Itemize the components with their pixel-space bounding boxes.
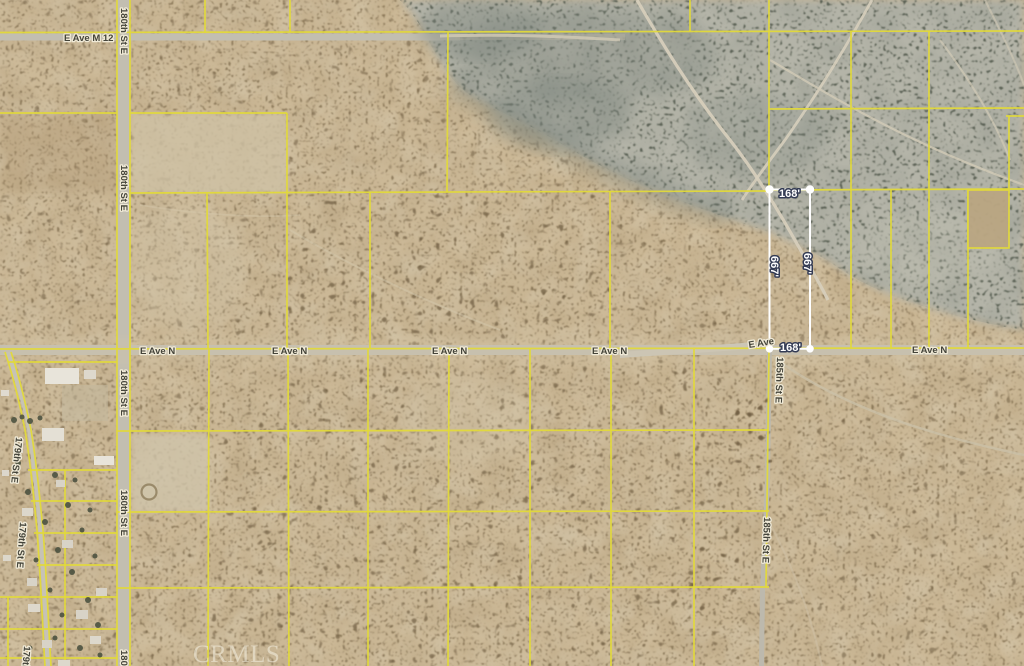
svg-text:E Ave M 12: E Ave M 12: [64, 33, 113, 44]
svg-text:180th St E: 180th St E: [118, 370, 129, 416]
svg-text:CRMLS: CRMLS: [193, 641, 280, 666]
svg-text:E Ave N: E Ave N: [432, 346, 467, 357]
svg-text:180th St E: 180th St E: [118, 650, 129, 666]
svg-text:179th: 179th: [19, 646, 32, 666]
svg-text:667': 667': [801, 253, 813, 274]
svg-text:E Ave N: E Ave N: [140, 346, 175, 357]
svg-text:E Ave N: E Ave N: [912, 345, 947, 356]
svg-text:180th St E: 180th St E: [118, 165, 129, 211]
svg-text:168': 168': [780, 342, 801, 354]
svg-text:180th St E: 180th St E: [118, 8, 129, 54]
svg-text:185th St E: 185th St E: [759, 517, 772, 563]
svg-text:E Ave N: E Ave N: [592, 346, 627, 357]
svg-text:667': 667': [768, 256, 780, 277]
svg-text:180th St E: 180th St E: [118, 490, 129, 536]
svg-text:E Ave N: E Ave N: [272, 346, 307, 357]
svg-text:168': 168': [779, 188, 800, 200]
svg-text:185th St E: 185th St E: [772, 357, 785, 403]
